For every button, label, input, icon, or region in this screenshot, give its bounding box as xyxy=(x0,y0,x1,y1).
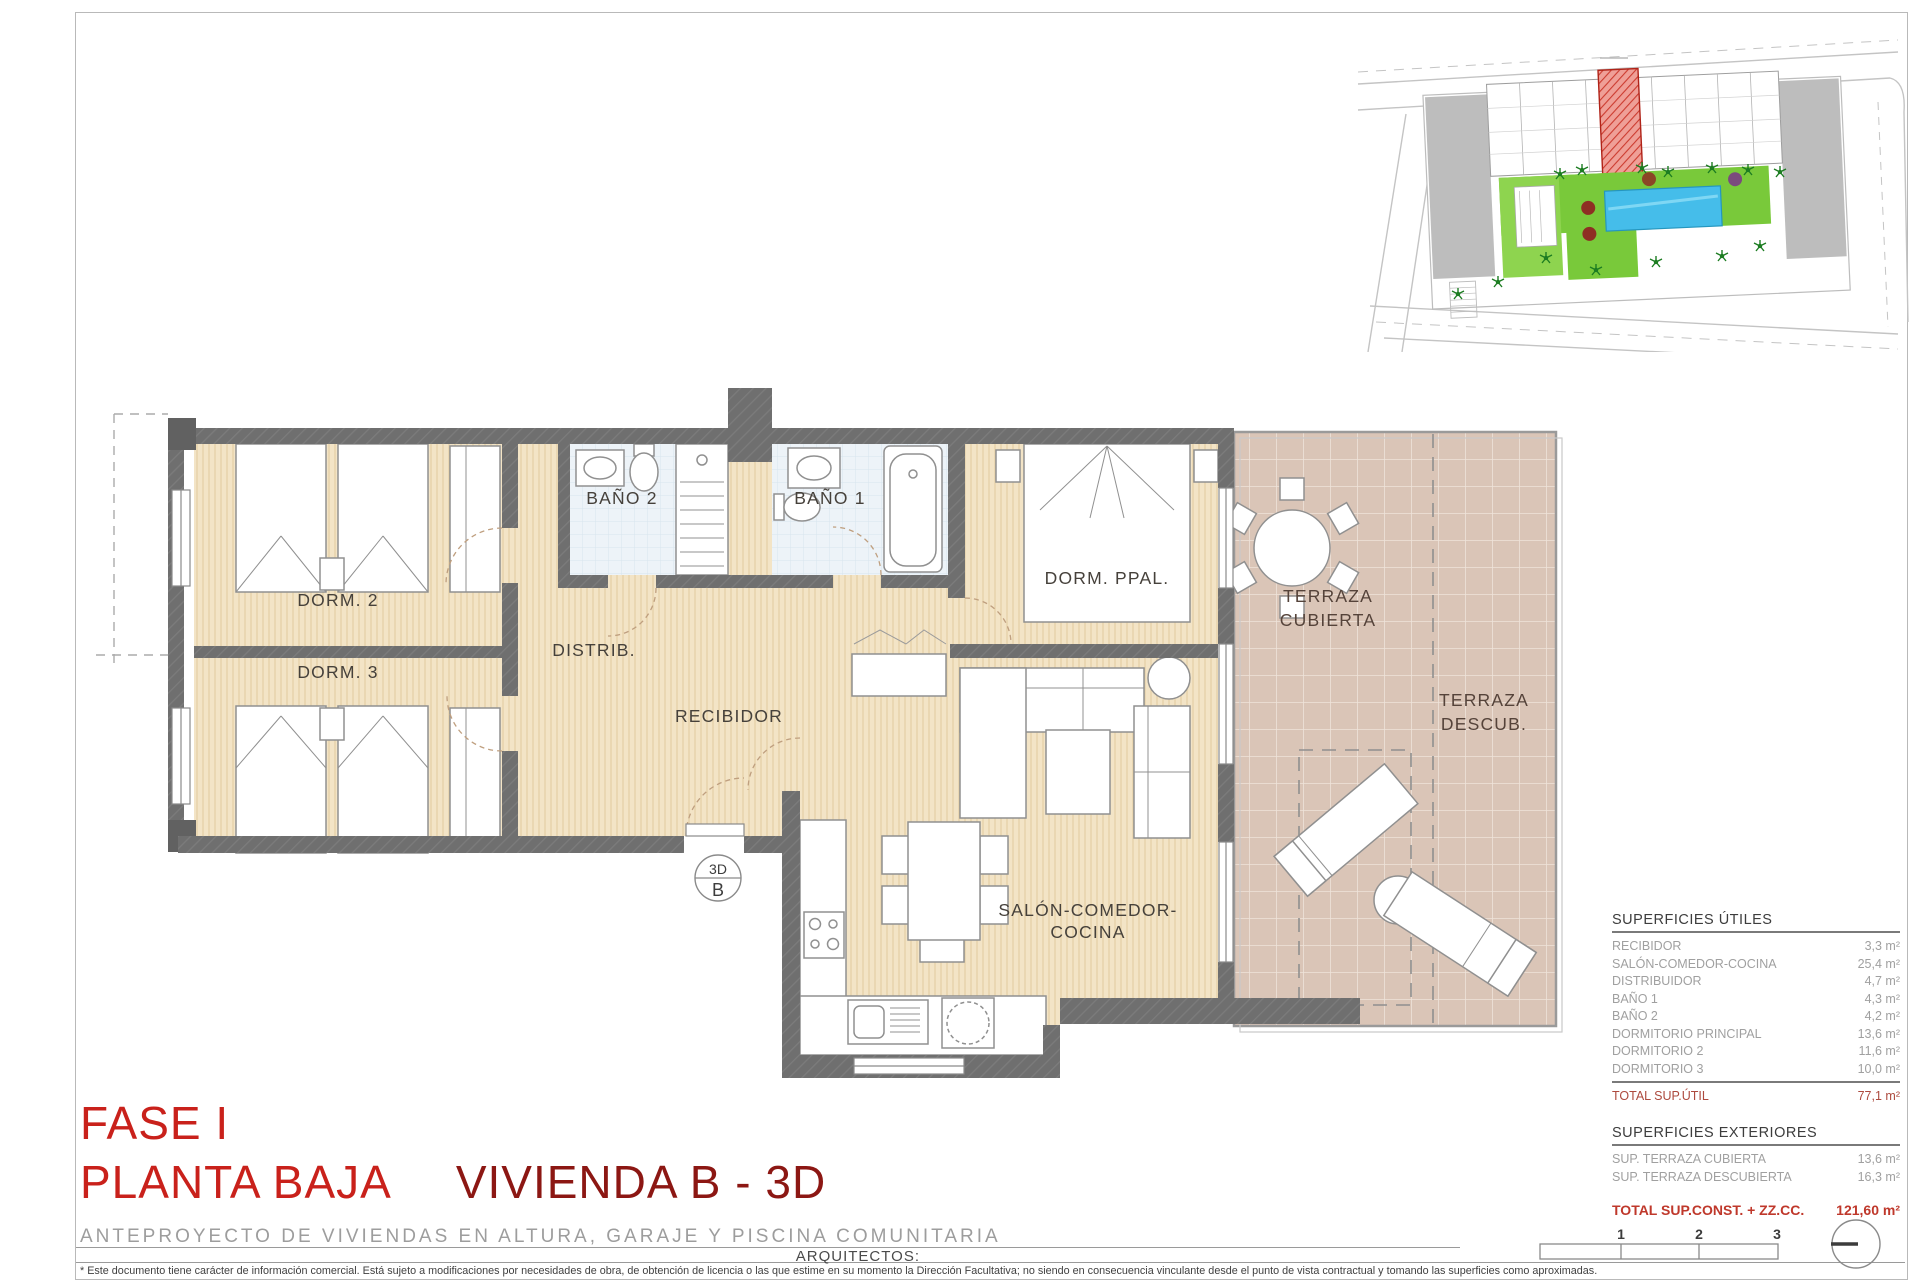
table-row: BAÑO 14,3 m² xyxy=(1612,991,1900,1009)
surfaces-exteriores-title: SUPERFICIES EXTERIORES xyxy=(1612,1125,1900,1146)
site-block xyxy=(1422,59,1851,319)
floor-title: PLANTA BAJA xyxy=(80,1159,392,1205)
label-distrib: DISTRIB. xyxy=(552,640,636,660)
label-terraza-desc-1: TERRAZA xyxy=(1439,690,1529,710)
floor-plan: DORM. 2 DORM. 3 BAÑO 2 BAÑO 1 DISTRIB. R… xyxy=(88,378,1568,1088)
table-row: DORMITORIO 211,6 m² xyxy=(1612,1043,1900,1061)
label-bano1: BAÑO 1 xyxy=(794,487,865,508)
unit-marker: 3D B xyxy=(695,855,741,901)
table-row: SUP. TERRAZA CUBIERTA13,6 m² xyxy=(1612,1151,1900,1169)
site-building-left xyxy=(1425,94,1495,279)
site-building-right xyxy=(1779,78,1847,259)
phase-title: FASE I xyxy=(80,1100,1001,1146)
title-block: FASE I PLANTA BAJA VIVIENDA B - 3D ANTEP… xyxy=(80,1100,1001,1246)
label-salon-1: SALÓN-COMEDOR- xyxy=(998,899,1177,920)
scale-bar: 1 2 3 xyxy=(1460,1215,1920,1277)
label-dorm-ppal: DORM. PPAL. xyxy=(1045,568,1170,588)
label-dorm3: DORM. 3 xyxy=(297,662,378,682)
plan-sheet: DORM. 2 DORM. 3 BAÑO 2 BAÑO 1 DISTRIB. R… xyxy=(0,0,1920,1280)
label-salon-2: COCINA xyxy=(1050,922,1125,942)
surfaces-utiles: SUPERFICIES ÚTILES RECIBIDOR3,3 m² SALÓN… xyxy=(1612,912,1900,1105)
svg-text:2: 2 xyxy=(1695,1226,1703,1242)
label-terraza-desc-2: DESCUB. xyxy=(1441,714,1527,734)
table-row: BAÑO 24,2 m² xyxy=(1612,1008,1900,1026)
table-row: DORMITORIO PRINCIPAL13,6 m² xyxy=(1612,1026,1900,1044)
label-recibidor: RECIBIDOR xyxy=(675,706,783,726)
boundary-dashed-lines xyxy=(96,414,168,670)
surfaces-utiles-title: SUPERFICIES ÚTILES xyxy=(1612,912,1900,933)
label-bano2: BAÑO 2 xyxy=(586,487,657,508)
svg-text:3: 3 xyxy=(1773,1226,1781,1242)
marker-bottom: B xyxy=(712,880,724,900)
label-terraza-cub-2: CUBIERTA xyxy=(1280,610,1376,630)
table-row: DISTRIBUIDOR4,7 m² xyxy=(1612,973,1900,991)
table-row: RECIBIDOR3,3 m² xyxy=(1612,938,1900,956)
label-terraza-cub-1: TERRAZA xyxy=(1283,586,1373,606)
north-indicator-icon xyxy=(1831,1220,1880,1268)
architects-label: ARQUITECTOS: xyxy=(620,1248,920,1265)
marker-top: 3D xyxy=(709,861,727,877)
table-row: SUP. TERRAZA DESCUBIERTA16,3 m² xyxy=(1612,1169,1900,1187)
label-dorm2: DORM. 2 xyxy=(297,590,378,610)
surfaces-exteriores: SUPERFICIES EXTERIORES SUP. TERRAZA CUBI… xyxy=(1612,1125,1900,1218)
table-row: DORMITORIO 310,0 m² xyxy=(1612,1061,1900,1079)
svg-text:1: 1 xyxy=(1617,1226,1625,1242)
surfaces-table: SUPERFICIES ÚTILES RECIBIDOR3,3 m² SALÓN… xyxy=(1612,912,1900,1218)
entrance-door-leaf xyxy=(686,824,744,836)
unit-title: VIVIENDA B - 3D xyxy=(456,1159,826,1205)
total-sup-util: TOTAL SUP.ÚTIL77,1 m² xyxy=(1612,1081,1900,1105)
table-row: SALÓN-COMEDOR-COCINA25,4 m² xyxy=(1612,956,1900,974)
scale-labels: 1 2 3 xyxy=(1617,1226,1781,1242)
project-subtitle: ANTEPROYECTO DE VIVIENDAS EN ALTURA, GAR… xyxy=(80,1227,1001,1246)
site-plan xyxy=(1350,22,1910,352)
